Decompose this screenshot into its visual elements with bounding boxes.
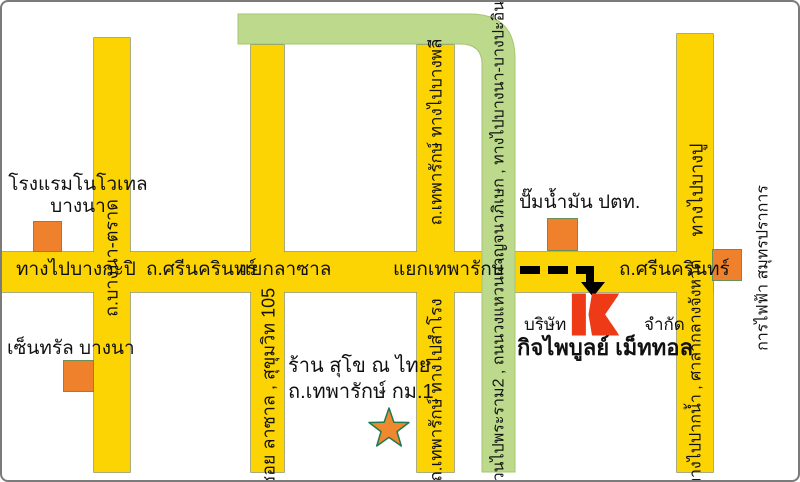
star-icon xyxy=(367,407,411,456)
ptt-building xyxy=(547,218,578,251)
central-label: เซ็นทรัล บางนา xyxy=(7,338,135,360)
road-label-srinakarin-right: ถ.ศรีนครินทร์ xyxy=(619,259,730,281)
road-label-bangna-trad: ถ.บางนา-ตราด xyxy=(97,199,126,317)
electricity-label: การไฟฟ้า สมุทรปราการ xyxy=(751,185,776,351)
road-label-bangpu: ทางไปบางปู xyxy=(682,144,711,237)
junction-label-lasalle: แยกลาซาล xyxy=(239,259,331,281)
road-label-lasalle-soi: ซอย ลาซาล , สุขุมวิท 105 xyxy=(254,288,283,482)
restaurant-label: ร้าน สุโข ณ ไทย ถ.เทพารักษ์ กม.1 xyxy=(288,353,414,405)
company-prefix-label: บริษัท xyxy=(524,315,566,335)
novotel-building xyxy=(33,221,62,252)
company-name-label: กิจไพบูลย์ เม็ททอล xyxy=(517,335,682,360)
road-label-ring-road: ทางด่วนไปพระราม2 , ถนนวงแหวนกาญจนาภิเษก … xyxy=(487,1,512,482)
ptt-label: ปั๊มน้ำมัน ปตท. xyxy=(519,192,640,214)
company-suffix-label: จำกัด xyxy=(644,315,685,335)
thai-direction-map: โรงแรมโนโวเทล บางนา เซ็นทรัล บางนา ทางไป… xyxy=(0,0,800,482)
road-label-thepharak-south: ถ.เทพารักษ์ ทางไปสำโรง xyxy=(423,298,450,481)
novotel-label: โรงแรมโนโวเทล บางนา xyxy=(4,174,152,218)
road-label-paknam: ทางไปปากน้ำ , ศาลากลางจังหวัด xyxy=(684,260,709,482)
central-building xyxy=(63,360,94,392)
road-label-thepharak-north: ถ.เทพารักษ์ ทางไปบางพลี xyxy=(423,39,450,226)
